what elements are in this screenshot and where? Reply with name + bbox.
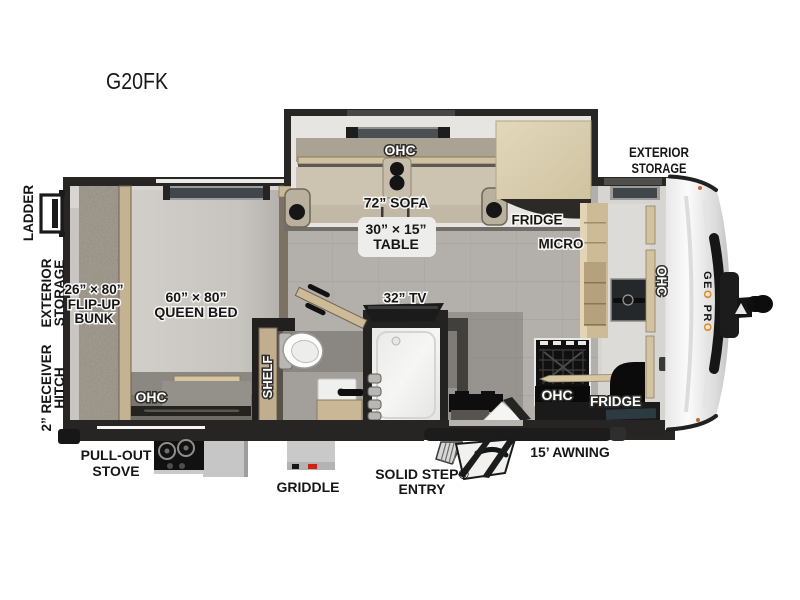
svg-text:OHC: OHC	[135, 389, 166, 405]
svg-text:TABLE: TABLE	[373, 236, 419, 252]
svg-text:SHELF: SHELF	[260, 356, 275, 399]
svg-text:HITCH: HITCH	[52, 367, 67, 408]
svg-text:26” × 80”: 26” × 80”	[65, 282, 124, 297]
svg-text:OHC: OHC	[654, 266, 669, 296]
svg-text:OHC: OHC	[541, 387, 572, 403]
svg-text:EXTERIOR: EXTERIOR	[629, 145, 689, 160]
svg-text:72” SOFA: 72” SOFA	[364, 195, 429, 211]
svg-text:PULL-OUT: PULL-OUT	[81, 447, 152, 463]
svg-text:FRIDGE: FRIDGE	[590, 394, 641, 409]
svg-text:OHC: OHC	[384, 142, 415, 158]
svg-text:GRIDDLE: GRIDDLE	[277, 479, 340, 495]
svg-text:15’ AWNING: 15’ AWNING	[530, 444, 610, 460]
svg-text:G20FK: G20FK	[106, 68, 168, 94]
svg-text:30” × 15”: 30” × 15”	[365, 221, 426, 237]
svg-text:FLIP-UP: FLIP-UP	[68, 297, 121, 312]
svg-text:BUNK: BUNK	[75, 311, 114, 326]
svg-text:QUEEN BED: QUEEN BED	[154, 304, 237, 320]
svg-text:GEO PRO: GEO PRO	[701, 271, 713, 333]
svg-text:60” × 80”: 60” × 80”	[165, 289, 226, 305]
svg-text:32” TV: 32” TV	[384, 291, 427, 306]
svg-text:LADDER: LADDER	[21, 185, 36, 241]
svg-text:MICRO: MICRO	[539, 237, 584, 252]
svg-text:FRIDGE: FRIDGE	[511, 213, 562, 228]
svg-text:ENTRY: ENTRY	[399, 481, 447, 497]
svg-text:SOLID STEP®: SOLID STEP®	[375, 466, 469, 482]
svg-text:STORAGE: STORAGE	[632, 161, 687, 176]
svg-text:STOVE: STOVE	[92, 463, 139, 479]
